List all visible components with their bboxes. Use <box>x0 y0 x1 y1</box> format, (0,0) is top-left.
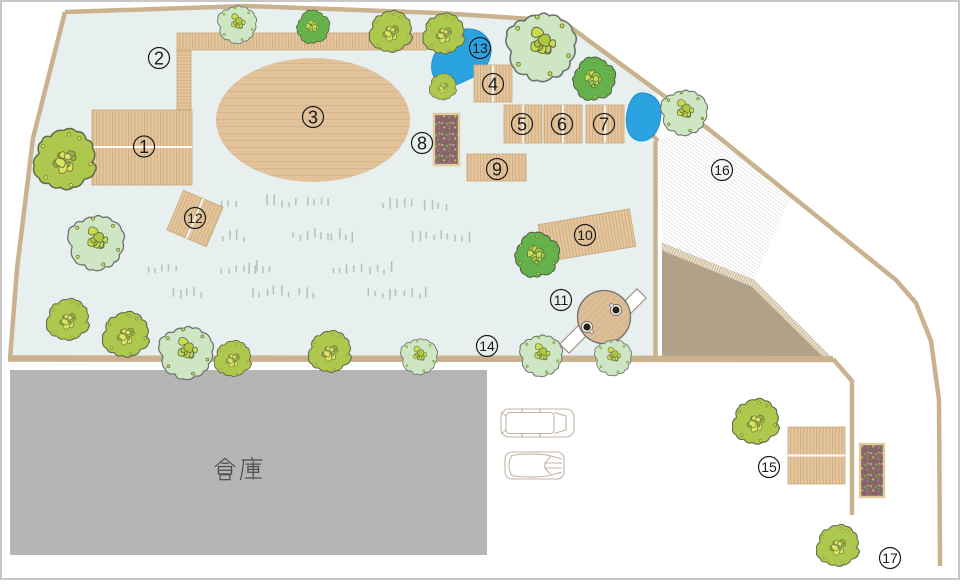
svg-text:6: 6 <box>557 114 567 134</box>
svg-text:11: 11 <box>554 292 569 308</box>
svg-text:1: 1 <box>139 137 149 157</box>
svg-text:2: 2 <box>154 48 164 68</box>
svg-text:10: 10 <box>577 227 593 243</box>
svg-text:17: 17 <box>882 550 898 566</box>
svg-text:16: 16 <box>714 162 730 178</box>
svg-text:12: 12 <box>187 210 203 226</box>
svg-text:13: 13 <box>472 40 488 56</box>
svg-text:9: 9 <box>492 159 502 179</box>
svg-text:15: 15 <box>761 459 777 475</box>
svg-text:14: 14 <box>479 338 495 354</box>
svg-text:4: 4 <box>488 74 498 94</box>
svg-text:5: 5 <box>517 114 527 134</box>
svg-text:3: 3 <box>308 107 318 127</box>
svg-text:8: 8 <box>417 133 427 153</box>
svg-text:7: 7 <box>599 114 609 134</box>
